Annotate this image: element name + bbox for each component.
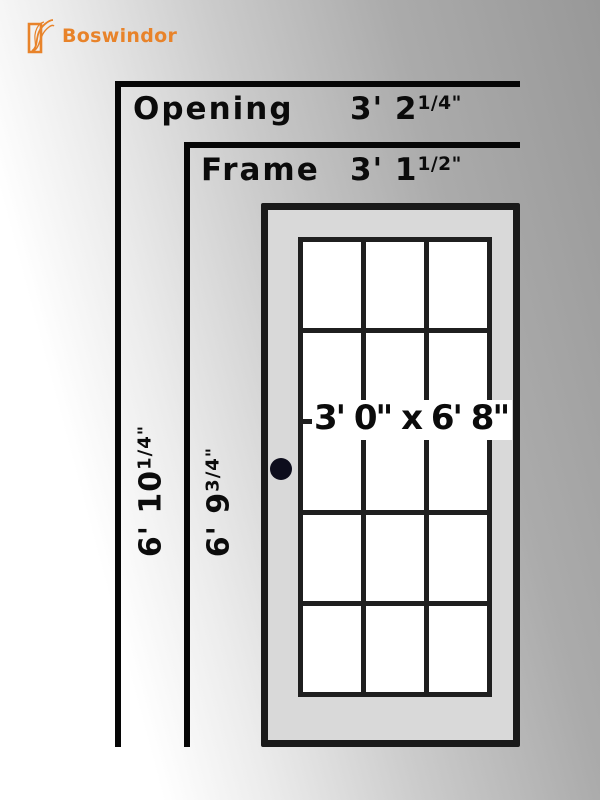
opening-width-number: 3' 2 [350, 91, 417, 127]
opening-height-number: 6' 10 [134, 470, 169, 557]
opening-height-value: 6' 101/4" [134, 425, 169, 557]
door-glass-grid [298, 237, 492, 697]
brand-logo: Boswindor [25, 16, 177, 56]
frame-width-value: 3' 11/2" [350, 152, 462, 188]
frame-width-fraction: 1/2" [417, 154, 461, 175]
glass-lite [429, 242, 487, 328]
frame-height-number: 6' 9 [202, 492, 237, 557]
opening-height-fraction: 1/4" [135, 425, 156, 470]
glass-lite [429, 515, 487, 601]
door-knob-icon [270, 458, 292, 480]
glass-lite [303, 606, 361, 692]
frame-width-line [184, 142, 520, 148]
opening-width-value: 3' 21/4" [350, 91, 462, 127]
opening-label: Opening [133, 91, 294, 127]
glass-lite [303, 242, 361, 328]
frame-height-value: 6' 93/4" [202, 447, 237, 557]
frame-height-fraction: 3/4" [203, 447, 224, 492]
door [261, 203, 520, 747]
opening-height-line [115, 81, 121, 747]
glass-lite [429, 606, 487, 692]
glass-lite [366, 242, 424, 328]
door-flourish-icon [25, 16, 55, 56]
frame-height-line [184, 142, 190, 747]
door-size-label: 3' 0" x 6' 8" [312, 400, 512, 440]
door-dimension-diagram: Boswindor Opening 3' 21/4" Frame 3' 11/2… [0, 0, 600, 800]
opening-width-line [115, 81, 520, 87]
glass-lite [366, 515, 424, 601]
frame-label: Frame [201, 152, 320, 188]
opening-width-fraction: 1/4" [417, 93, 461, 114]
glass-lite [303, 515, 361, 601]
frame-width-number: 3' 1 [350, 152, 417, 188]
brand-name: Boswindor [62, 25, 177, 47]
glass-lite [366, 606, 424, 692]
